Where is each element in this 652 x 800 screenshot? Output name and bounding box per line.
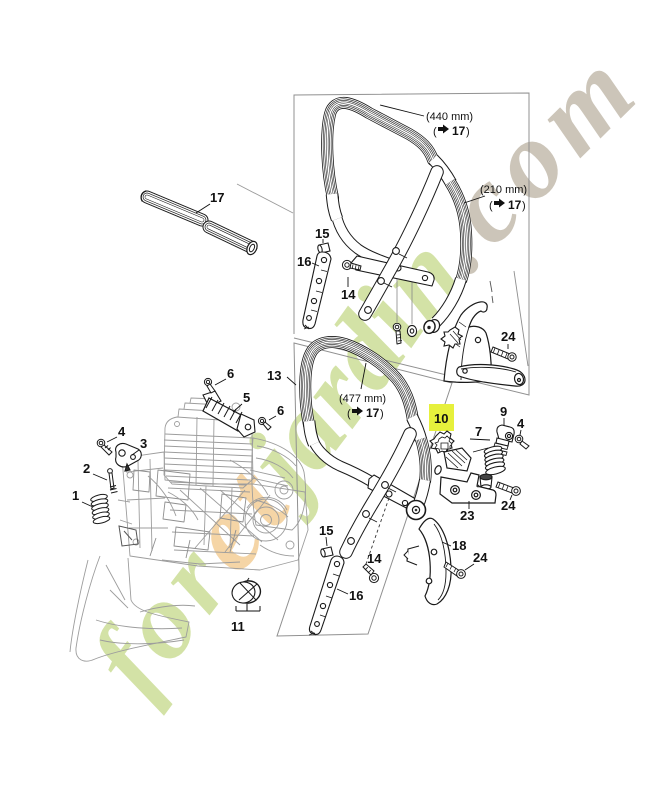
svg-text:16: 16 — [349, 588, 363, 603]
svg-text:23: 23 — [460, 508, 474, 523]
svg-text:(: ( — [489, 200, 493, 212]
svg-text:): ) — [380, 408, 384, 420]
svg-text:17: 17 — [508, 198, 522, 212]
svg-text:17: 17 — [210, 190, 224, 205]
svg-text:6: 6 — [277, 403, 284, 418]
svg-text:24: 24 — [473, 550, 488, 565]
svg-text:10: 10 — [434, 411, 448, 426]
svg-text:17: 17 — [452, 124, 466, 138]
svg-text:(: ( — [347, 408, 351, 420]
svg-text:9: 9 — [500, 404, 507, 419]
svg-text:14: 14 — [341, 287, 356, 302]
svg-text:(210 mm): (210 mm) — [480, 184, 527, 196]
svg-text:1: 1 — [72, 488, 79, 503]
svg-text:4: 4 — [118, 424, 126, 439]
svg-text:14: 14 — [367, 551, 382, 566]
svg-text:15: 15 — [319, 523, 333, 538]
svg-text:): ) — [522, 200, 526, 212]
svg-text:3: 3 — [140, 436, 147, 451]
svg-text:4: 4 — [517, 416, 525, 431]
svg-text:5: 5 — [243, 390, 250, 405]
svg-text:(477 mm): (477 mm) — [339, 393, 386, 405]
svg-text:16: 16 — [297, 254, 311, 269]
svg-text:(: ( — [433, 126, 437, 138]
svg-text:15: 15 — [315, 226, 329, 241]
svg-text:2: 2 — [83, 461, 90, 476]
svg-text:(440 mm): (440 mm) — [426, 111, 473, 123]
svg-text:7: 7 — [475, 424, 482, 439]
svg-text:6: 6 — [227, 366, 234, 381]
svg-text:18: 18 — [452, 538, 466, 553]
svg-text:24: 24 — [501, 329, 516, 344]
svg-text:24: 24 — [501, 498, 516, 513]
svg-text:17: 17 — [366, 406, 380, 420]
svg-text:13: 13 — [267, 368, 281, 383]
svg-text:): ) — [466, 126, 470, 138]
svg-text:11: 11 — [231, 619, 245, 634]
